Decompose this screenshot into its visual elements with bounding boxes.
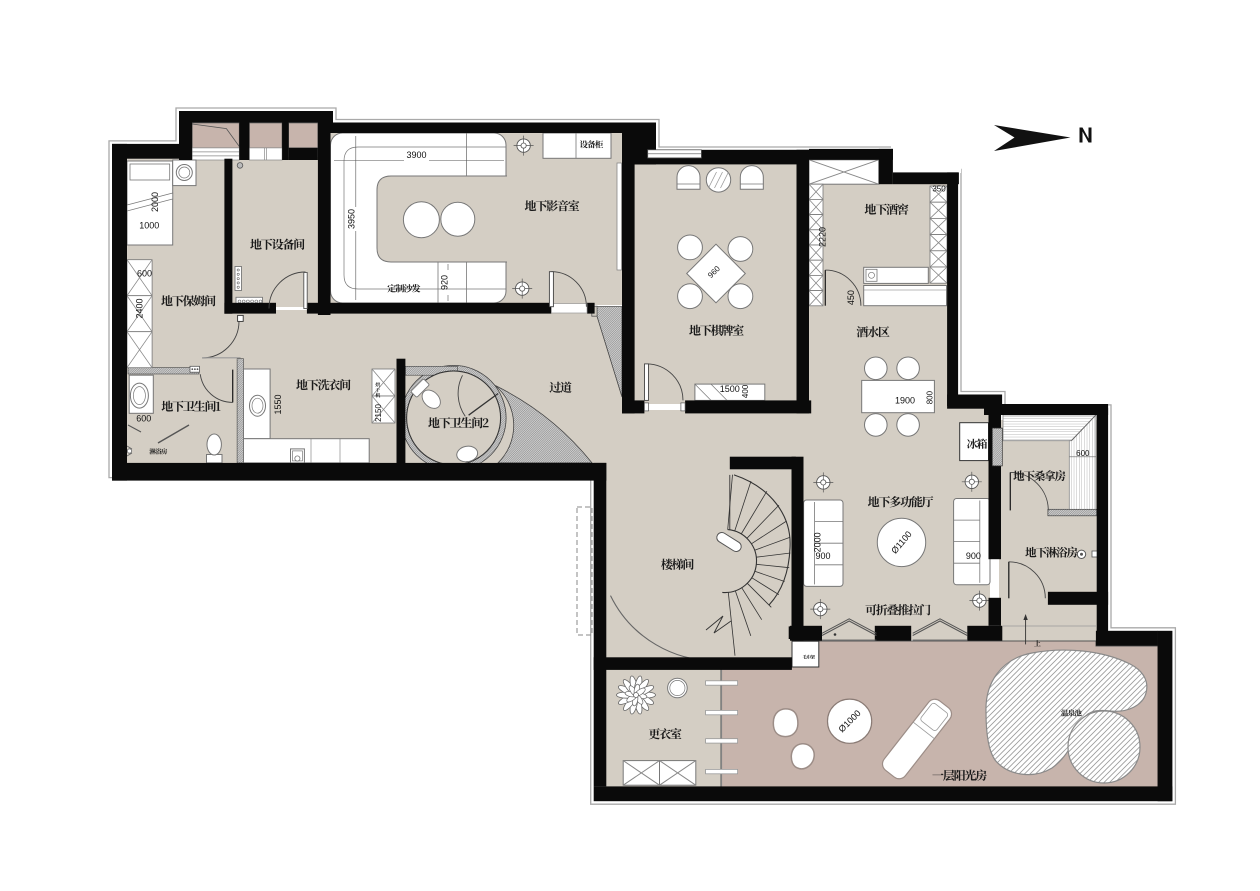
svg-text:3950: 3950 xyxy=(347,209,357,229)
svg-text:1500: 1500 xyxy=(720,384,740,394)
svg-text:400: 400 xyxy=(741,384,750,398)
svg-text:2150: 2150 xyxy=(374,404,383,422)
svg-text:900: 900 xyxy=(966,551,981,561)
svg-text:1000: 1000 xyxy=(139,220,159,230)
svg-text:2220: 2220 xyxy=(818,227,828,247)
svg-text:600: 600 xyxy=(1076,449,1090,458)
svg-text:800: 800 xyxy=(926,390,935,404)
svg-text:1550: 1550 xyxy=(273,394,283,414)
svg-text:920: 920 xyxy=(440,275,450,290)
svg-text:450: 450 xyxy=(846,290,856,305)
svg-text:3900: 3900 xyxy=(406,150,426,160)
svg-text:600: 600 xyxy=(136,413,151,423)
svg-text:2400: 2400 xyxy=(134,298,144,318)
svg-text:900: 900 xyxy=(815,551,830,561)
svg-text:2000: 2000 xyxy=(812,532,822,552)
svg-text:600: 600 xyxy=(137,269,152,279)
svg-text:350: 350 xyxy=(932,185,946,194)
svg-text:2000: 2000 xyxy=(150,192,160,212)
svg-text:1900: 1900 xyxy=(895,396,915,406)
